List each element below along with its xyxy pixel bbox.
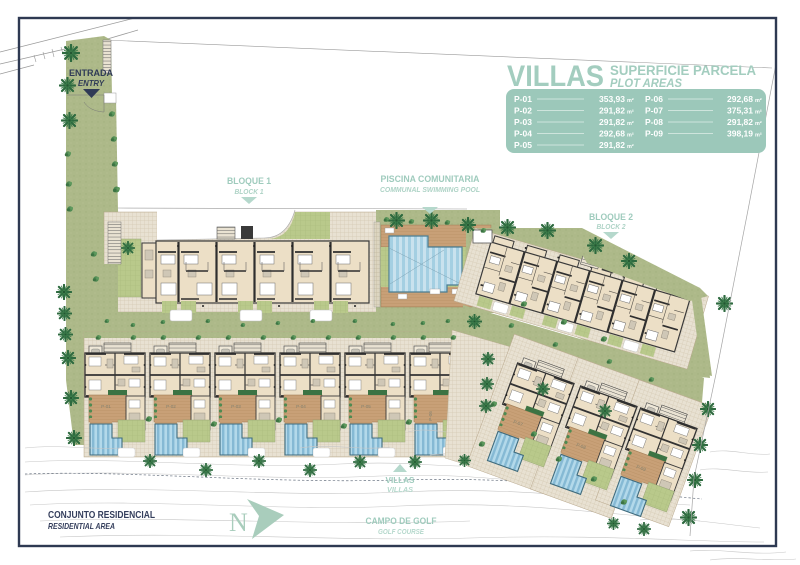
svg-text:P-09: P-09	[645, 129, 663, 139]
svg-text:292,68: 292,68	[727, 94, 753, 104]
svg-text:m²: m²	[627, 143, 634, 150]
svg-text:P-06: P-06	[645, 94, 663, 104]
svg-text:292,68: 292,68	[599, 129, 625, 139]
svg-text:353,93: 353,93	[599, 94, 625, 104]
svg-text:m²: m²	[755, 120, 762, 127]
svg-text:398,19: 398,19	[727, 129, 753, 139]
svg-text:P-04: P-04	[514, 129, 532, 139]
svg-text:ENTRADA: ENTRADA	[69, 68, 113, 79]
svg-text:RESIDENTIAL AREA: RESIDENTIAL AREA	[48, 521, 115, 531]
svg-text:P-01: P-01	[101, 404, 111, 409]
svg-text:GOLF COURSE: GOLF COURSE	[378, 527, 425, 536]
svg-text:BLOQUE 1: BLOQUE 1	[227, 176, 272, 187]
svg-text:291,82: 291,82	[599, 117, 625, 127]
svg-text:m²: m²	[627, 120, 634, 127]
svg-text:P-03: P-03	[514, 117, 532, 127]
svg-text:VILLAS: VILLAS	[387, 485, 413, 494]
svg-text:P-02: P-02	[514, 106, 532, 116]
svg-text:P-03: P-03	[231, 404, 241, 409]
svg-text:PISCINA COMUNITARIA: PISCINA COMUNITARIA	[381, 174, 480, 185]
svg-text:VILLAS: VILLAS	[386, 475, 415, 485]
svg-text:291,82: 291,82	[599, 140, 625, 150]
svg-text:m²: m²	[627, 97, 634, 104]
svg-text:P-04: P-04	[296, 404, 306, 409]
svg-text:375,31: 375,31	[727, 106, 753, 116]
svg-text:291,82: 291,82	[599, 106, 625, 116]
svg-text:CAMPO DE GOLF: CAMPO DE GOLF	[366, 516, 437, 526]
svg-text:P-05: P-05	[514, 140, 532, 150]
svg-text:CONJUNTO RESIDENCIAL: CONJUNTO RESIDENCIAL	[48, 509, 155, 521]
svg-text:P-01: P-01	[514, 94, 532, 104]
svg-text:ENTRY: ENTRY	[78, 79, 105, 88]
svg-text:P-08: P-08	[645, 117, 663, 127]
svg-text:P-02: P-02	[166, 404, 176, 409]
svg-text:m²: m²	[627, 109, 634, 116]
svg-text:VILLAS: VILLAS	[507, 60, 604, 93]
svg-text:P-05: P-05	[361, 404, 371, 409]
svg-text:m²: m²	[755, 97, 762, 104]
svg-text:COMMUNAL SWIMMING POOL: COMMUNAL SWIMMING POOL	[380, 185, 480, 194]
svg-text:m²: m²	[755, 109, 762, 116]
svg-text:291,82: 291,82	[727, 117, 753, 127]
svg-text:m²: m²	[627, 132, 634, 139]
svg-text:P-06: P-06	[428, 411, 433, 421]
svg-text:BLOCK 2: BLOCK 2	[597, 222, 627, 231]
svg-text:PLOT AREAS: PLOT AREAS	[610, 76, 682, 90]
svg-text:BLOCK 1: BLOCK 1	[235, 187, 264, 196]
svg-text:m²: m²	[755, 132, 762, 139]
svg-text:N: N	[229, 508, 248, 537]
svg-text:P-07: P-07	[645, 106, 663, 116]
